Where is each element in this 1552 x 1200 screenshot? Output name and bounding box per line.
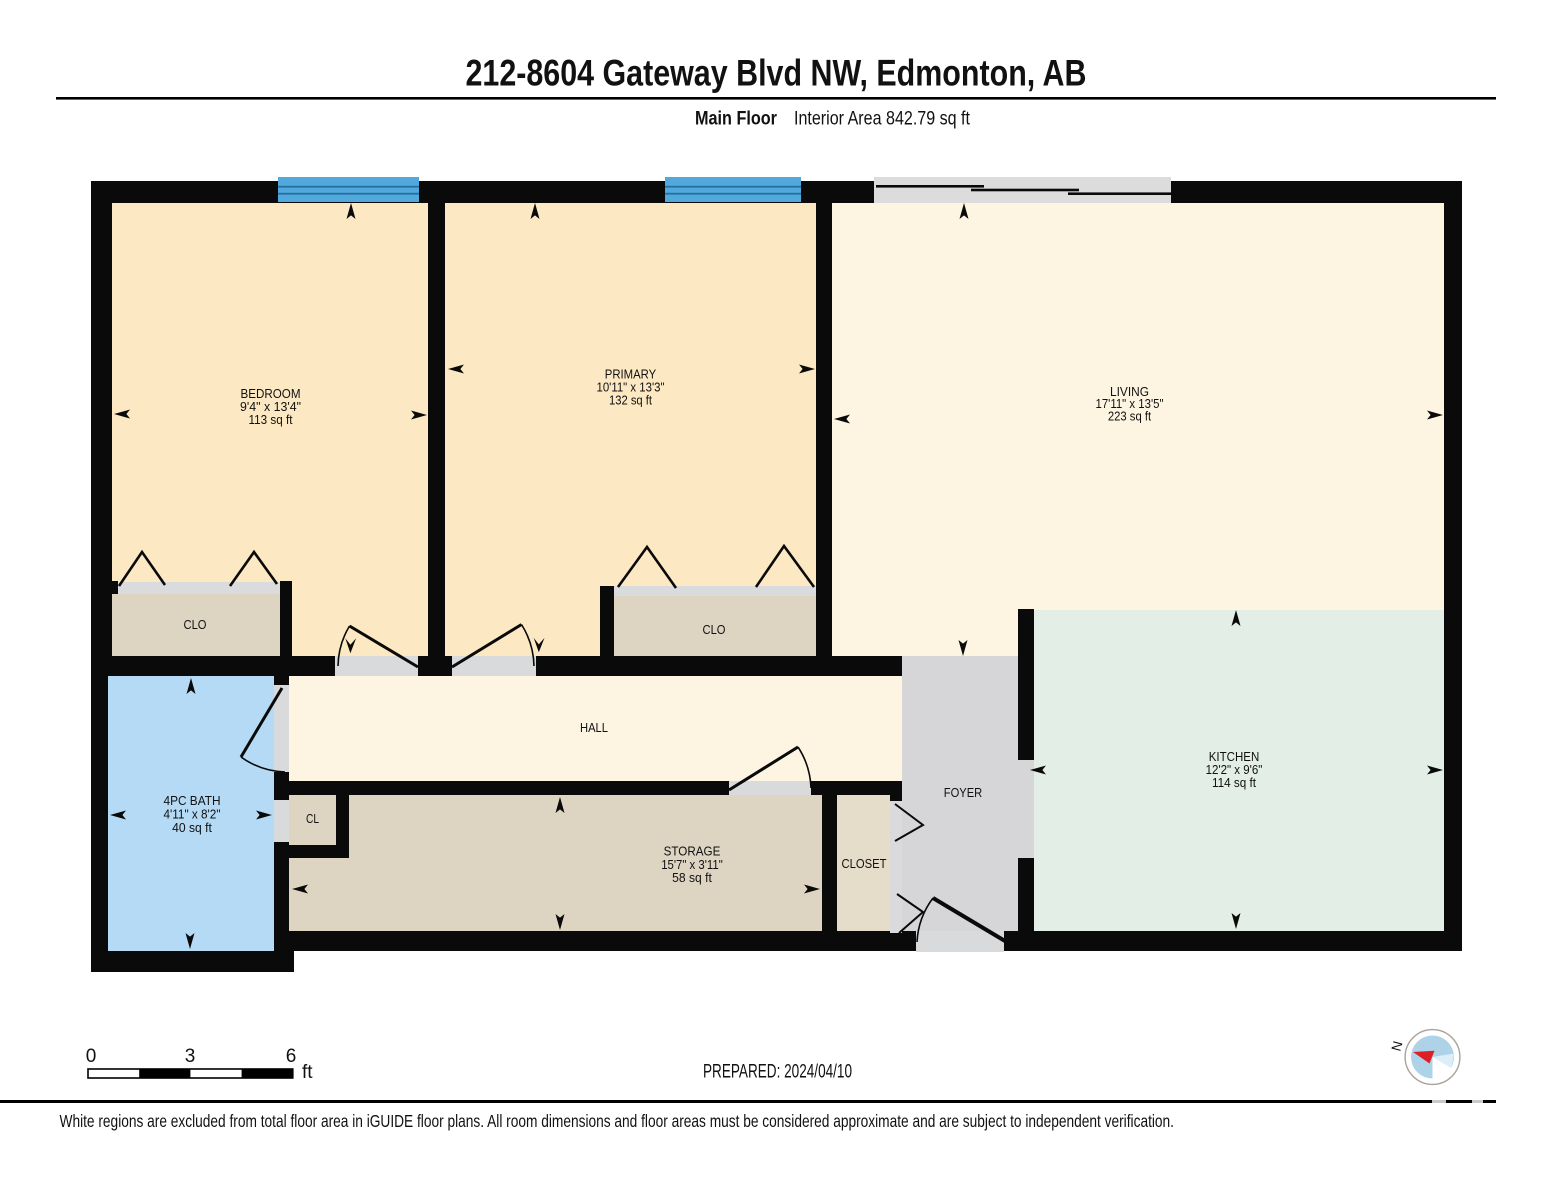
svg-text:PREPARED: 2024/04/10: PREPARED: 2024/04/10 — [703, 1061, 852, 1083]
svg-text:132 sq ft: 132 sq ft — [609, 393, 652, 408]
svg-text:CLO: CLO — [184, 617, 207, 632]
svg-text:Interior Area 842.79 sq ft: Interior Area 842.79 sq ft — [794, 108, 970, 130]
svg-text:FOYER: FOYER — [944, 785, 983, 800]
svg-text:3: 3 — [185, 1046, 196, 1067]
svg-text:113 sq ft: 113 sq ft — [249, 412, 293, 427]
svg-text:40 sq ft: 40 sq ft — [172, 820, 212, 835]
svg-text:CLO: CLO — [703, 622, 726, 637]
svg-text:114 sq ft: 114 sq ft — [1212, 775, 1256, 790]
svg-text:HALL: HALL — [580, 720, 608, 735]
svg-text:CL: CL — [306, 811, 319, 826]
svg-text:ft: ft — [302, 1062, 313, 1083]
svg-text:6: 6 — [286, 1046, 297, 1067]
svg-text:White regions are excluded fro: White regions are excluded from total fl… — [60, 1111, 1175, 1131]
svg-text:212-8604 Gateway Blvd NW, Edmo: 212-8604 Gateway Blvd NW, Edmonton, AB — [466, 53, 1087, 94]
svg-text:0: 0 — [86, 1046, 97, 1067]
svg-text:Main Floor: Main Floor — [695, 108, 777, 130]
svg-text:223 sq ft: 223 sq ft — [1108, 409, 1152, 424]
svg-text:CLOSET: CLOSET — [842, 856, 887, 871]
svg-text:58 sq ft: 58 sq ft — [672, 870, 712, 885]
